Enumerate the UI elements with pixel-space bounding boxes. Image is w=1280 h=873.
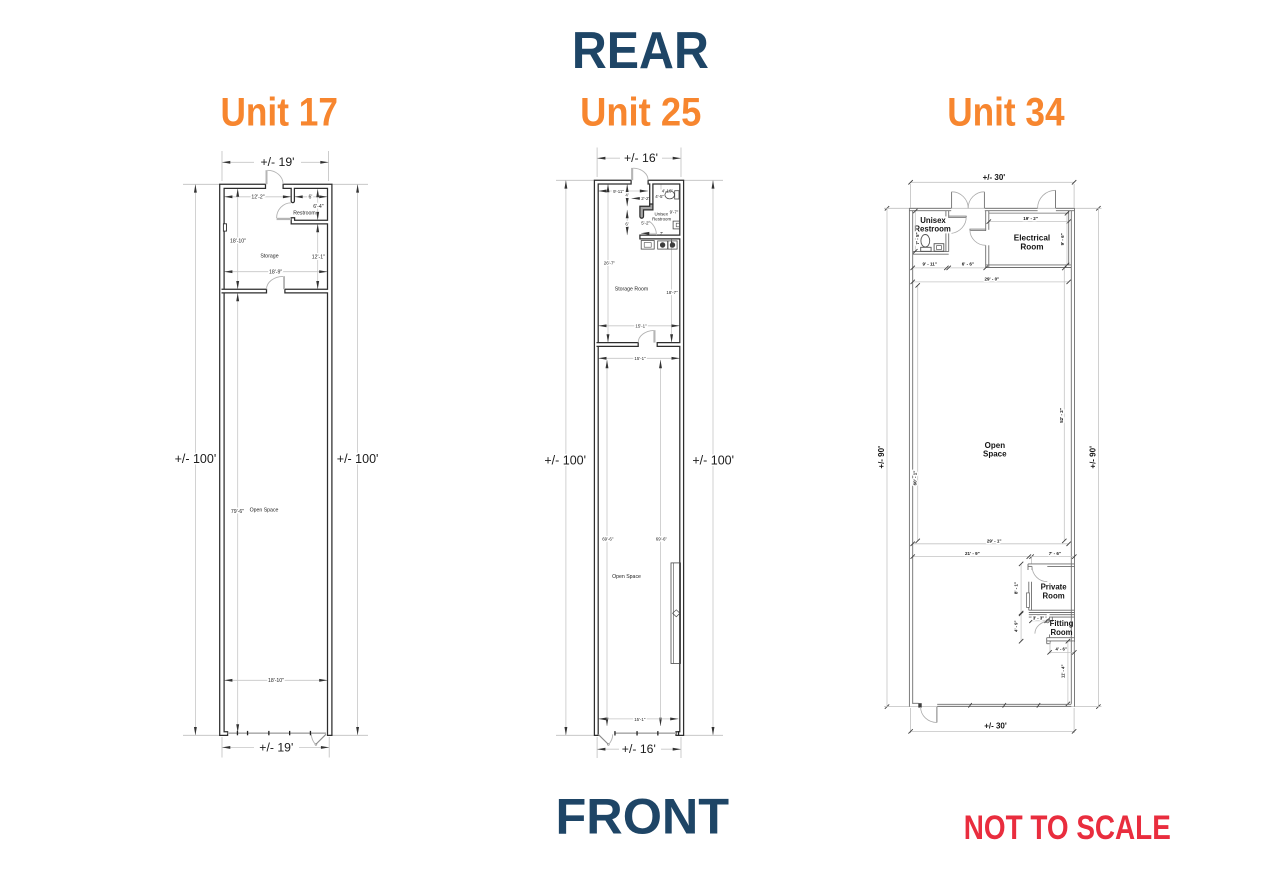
svg-text:+/- 19': +/- 19' bbox=[259, 742, 293, 754]
svg-text:Restroom: Restroom bbox=[293, 210, 316, 216]
svg-text:+/- 30': +/- 30' bbox=[984, 722, 1007, 731]
svg-text:Room: Room bbox=[1050, 628, 1072, 637]
svg-text:+/- 90': +/- 90' bbox=[877, 446, 886, 469]
svg-text:FRONT: FRONT bbox=[556, 788, 730, 844]
svg-text:Fitting: Fitting bbox=[1050, 619, 1074, 628]
svg-text:+/- 100': +/- 100' bbox=[692, 454, 734, 468]
svg-text:7' - 5": 7' - 5" bbox=[915, 232, 920, 244]
svg-text:Storage: Storage bbox=[260, 254, 278, 260]
svg-text:NOT TO SCALE: NOT TO SCALE bbox=[964, 809, 1171, 847]
svg-text:52' - 2": 52' - 2" bbox=[1059, 408, 1064, 423]
svg-text:4'-5": 4'-5" bbox=[655, 194, 664, 199]
svg-text:7' - 6": 7' - 6" bbox=[1049, 551, 1061, 556]
svg-text:18'-7": 18'-7" bbox=[666, 290, 678, 295]
svg-text:18'-10": 18'-10" bbox=[268, 678, 284, 684]
svg-text:29' - 1": 29' - 1" bbox=[987, 538, 1002, 543]
svg-text:+/- 30': +/- 30' bbox=[983, 173, 1006, 182]
svg-text:+/- 100': +/- 100' bbox=[175, 452, 217, 466]
svg-text:21' - 9": 21' - 9" bbox=[965, 551, 980, 556]
svg-text:18'-10": 18'-10" bbox=[230, 238, 246, 244]
svg-text:Restroom: Restroom bbox=[652, 217, 671, 222]
svg-text:4': 4' bbox=[625, 192, 628, 197]
svg-text:+/- 16': +/- 16' bbox=[624, 153, 658, 165]
svg-text:3' - 3": 3' - 3" bbox=[1033, 616, 1044, 621]
svg-text:Storage Room: Storage Room bbox=[615, 287, 648, 293]
svg-text:15'-1": 15'-1" bbox=[634, 356, 646, 361]
svg-text:4' - 6": 4' - 6" bbox=[1056, 646, 1067, 651]
svg-text:6': 6' bbox=[309, 195, 313, 201]
svg-text:Unit 17: Unit 17 bbox=[220, 91, 338, 135]
svg-text:2'-2": 2'-2" bbox=[641, 196, 650, 201]
svg-text:79'-6": 79'-6" bbox=[231, 509, 244, 515]
svg-text:60' - 1": 60' - 1" bbox=[912, 471, 917, 486]
svg-text:+/- 100': +/- 100' bbox=[544, 454, 586, 468]
svg-text:Unit 25: Unit 25 bbox=[580, 91, 701, 135]
svg-text:Open Space: Open Space bbox=[250, 508, 279, 514]
svg-text:Electrical: Electrical bbox=[1014, 233, 1050, 242]
svg-text:4' - 9": 4' - 9" bbox=[1014, 621, 1019, 632]
svg-text:Unit 34: Unit 34 bbox=[947, 91, 1065, 135]
svg-text:Open Space: Open Space bbox=[612, 574, 641, 580]
svg-text:6'-4": 6'-4" bbox=[313, 204, 323, 210]
svg-text:6': 6' bbox=[625, 221, 628, 226]
svg-text:8' - 1": 8' - 1" bbox=[1014, 582, 1019, 594]
svg-text:26'-7": 26'-7" bbox=[604, 260, 616, 265]
svg-text:15'-1": 15'-1" bbox=[634, 717, 646, 722]
svg-text:6' - 6": 6' - 6" bbox=[962, 262, 974, 267]
svg-text:69'-6": 69'-6" bbox=[656, 537, 668, 542]
svg-text:12'-2": 12'-2" bbox=[251, 195, 264, 201]
svg-text:+/- 19': +/- 19' bbox=[261, 157, 295, 169]
svg-text:19' - 2": 19' - 2" bbox=[1023, 216, 1038, 221]
svg-text:11' - 4": 11' - 4" bbox=[1061, 665, 1066, 678]
svg-text:15'-1": 15'-1" bbox=[635, 324, 647, 329]
svg-text:9' - 6": 9' - 6" bbox=[1060, 233, 1065, 245]
svg-text:+/- 100': +/- 100' bbox=[337, 452, 379, 466]
svg-text:69'-6": 69'-6" bbox=[602, 537, 614, 542]
svg-text:Room: Room bbox=[1043, 592, 1065, 601]
svg-text:9' - 11": 9' - 11" bbox=[922, 262, 936, 267]
svg-text:+/- 16': +/- 16' bbox=[622, 744, 656, 756]
svg-text:REAR: REAR bbox=[572, 22, 709, 80]
svg-text:12'-1": 12'-1" bbox=[312, 255, 325, 261]
svg-text:18'-9": 18'-9" bbox=[269, 270, 282, 276]
svg-text:Room: Room bbox=[1020, 243, 1043, 252]
svg-text:+/- 90': +/- 90' bbox=[1088, 446, 1097, 469]
svg-text:9'-11": 9'-11" bbox=[613, 189, 624, 194]
svg-text:Restroom: Restroom bbox=[914, 224, 950, 233]
svg-text:29' - 0": 29' - 0" bbox=[985, 276, 1000, 281]
svg-text:Space: Space bbox=[983, 450, 1007, 459]
svg-text:Private: Private bbox=[1041, 582, 1068, 591]
svg-text:9'-7": 9'-7" bbox=[670, 209, 679, 214]
